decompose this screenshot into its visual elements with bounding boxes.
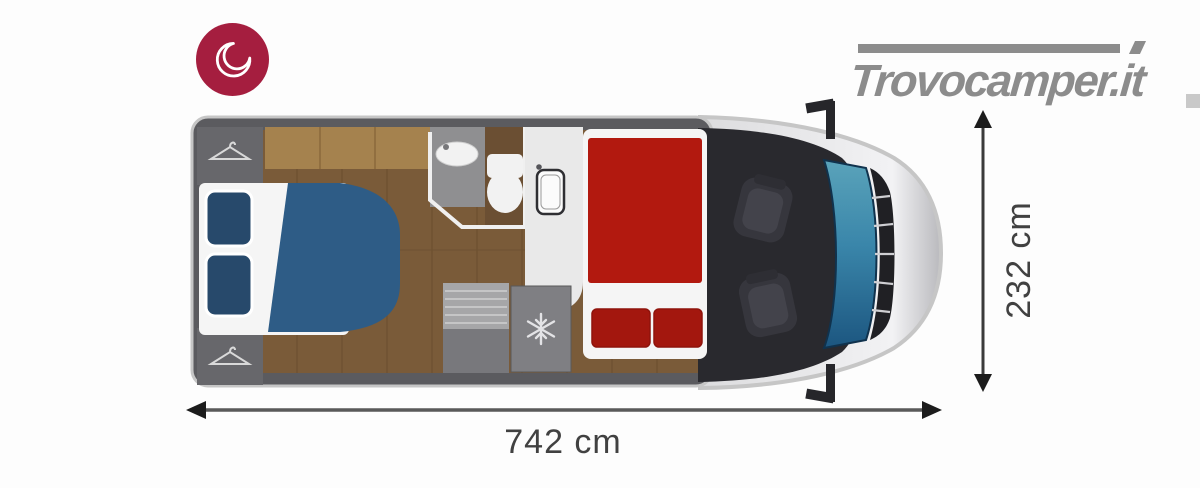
length-dimension-label: 742 cm [463,423,663,462]
bathroom-tile [430,127,485,207]
rear-bed-duvet [268,183,400,332]
red-pillow-left [592,309,650,347]
bathroom-sink [436,142,478,166]
blue-pillow-bottom [206,254,252,316]
blue-pillow-top [206,191,252,246]
red-pillow-right [654,309,702,347]
wardrobe-top [197,127,263,185]
kitchen-counter [525,127,583,312]
entry-steps-lower [443,329,509,373]
width-dimension-arrow [974,110,992,392]
entry-steps-upper [443,283,509,329]
overhead-cabinets [265,127,430,169]
wardrobe-bottom [197,328,263,385]
length-dimension-arrow [186,401,942,419]
toilet-bowl [487,171,523,213]
camper-listing-image: Trovocamper.it [0,0,1200,488]
kitchen-faucet-icon [536,164,542,170]
sink-faucet-icon [443,144,449,150]
width-dimension-label: 232 cm [1000,160,1040,360]
front-bed-red-cover [588,138,702,283]
